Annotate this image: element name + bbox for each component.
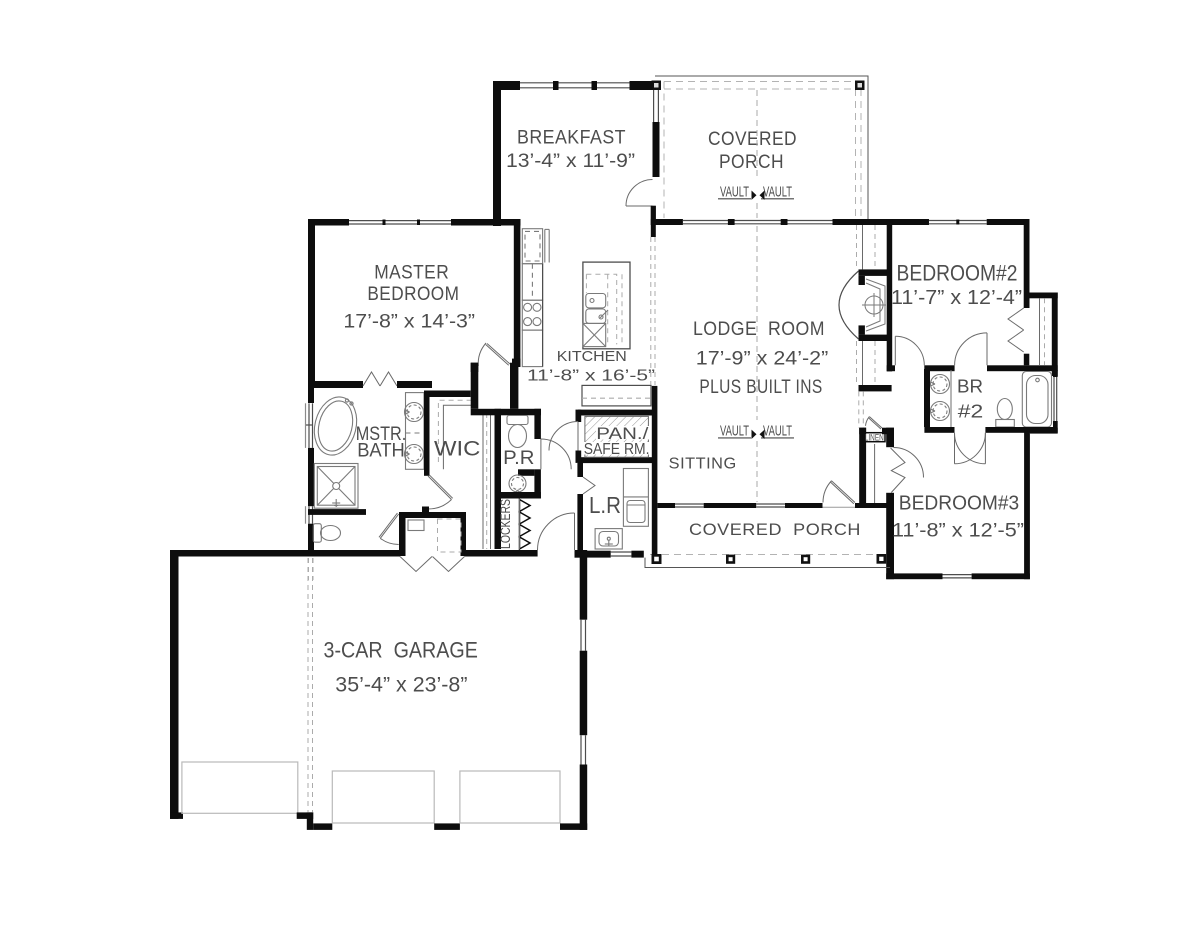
svg-text:BEDROOM#2: BEDROOM#2	[897, 261, 1018, 286]
svg-text:SAFE RM.: SAFE RM.	[584, 441, 650, 458]
svg-text:35’-4” x 23’-8”: 35’-4” x 23’-8”	[335, 674, 467, 697]
svg-text:PLUS BUILT INS: PLUS BUILT INS	[699, 376, 822, 398]
svg-text:VAULT: VAULT	[763, 423, 792, 440]
svg-text:VAULT: VAULT	[720, 423, 749, 440]
svg-text:BEDROOM: BEDROOM	[367, 283, 459, 305]
svg-text:#2: #2	[958, 402, 984, 422]
svg-text:L.R: L.R	[589, 492, 621, 518]
svg-text:BEDROOM#3: BEDROOM#3	[899, 492, 1019, 514]
svg-text:VAULT: VAULT	[720, 183, 749, 200]
svg-text:17’-8” x 14’-3”: 17’-8” x 14’-3”	[343, 312, 475, 333]
svg-text:COVERED: COVERED	[708, 128, 797, 150]
svg-text:KITCHEN: KITCHEN	[557, 349, 627, 365]
svg-text:PORCH: PORCH	[719, 151, 784, 173]
svg-text:MASTER: MASTER	[374, 261, 449, 283]
svg-text:COVERED PORCH: COVERED PORCH	[689, 521, 861, 539]
svg-text:BR: BR	[957, 377, 983, 397]
svg-text:SITTING: SITTING	[669, 456, 737, 473]
svg-text:17’-9” x 24’-2”: 17’-9” x 24’-2”	[696, 349, 829, 370]
svg-text:11’-8” x 12’-5”: 11’-8” x 12’-5”	[892, 521, 1024, 542]
svg-text:BREAKFAST: BREAKFAST	[517, 127, 626, 149]
svg-text:LODGE ROOM: LODGE ROOM	[693, 318, 825, 340]
svg-text:11’-7” x 12’-4”: 11’-7” x 12’-4”	[891, 287, 1022, 309]
svg-text:BATH: BATH	[357, 441, 405, 462]
svg-text:11’-8” x 16’-5”: 11’-8” x 16’-5”	[527, 368, 655, 385]
svg-text:LINEN: LINEN	[865, 432, 884, 442]
svg-text:P.R: P.R	[503, 448, 534, 469]
svg-text:3-CAR GARAGE: 3-CAR GARAGE	[324, 638, 478, 663]
svg-text:VAULT: VAULT	[763, 183, 792, 200]
svg-text:WIC: WIC	[434, 437, 480, 460]
svg-text:LOCKERS: LOCKERS	[497, 499, 513, 549]
svg-text:13’-4” x 11’-9”: 13’-4” x 11’-9”	[506, 151, 635, 172]
